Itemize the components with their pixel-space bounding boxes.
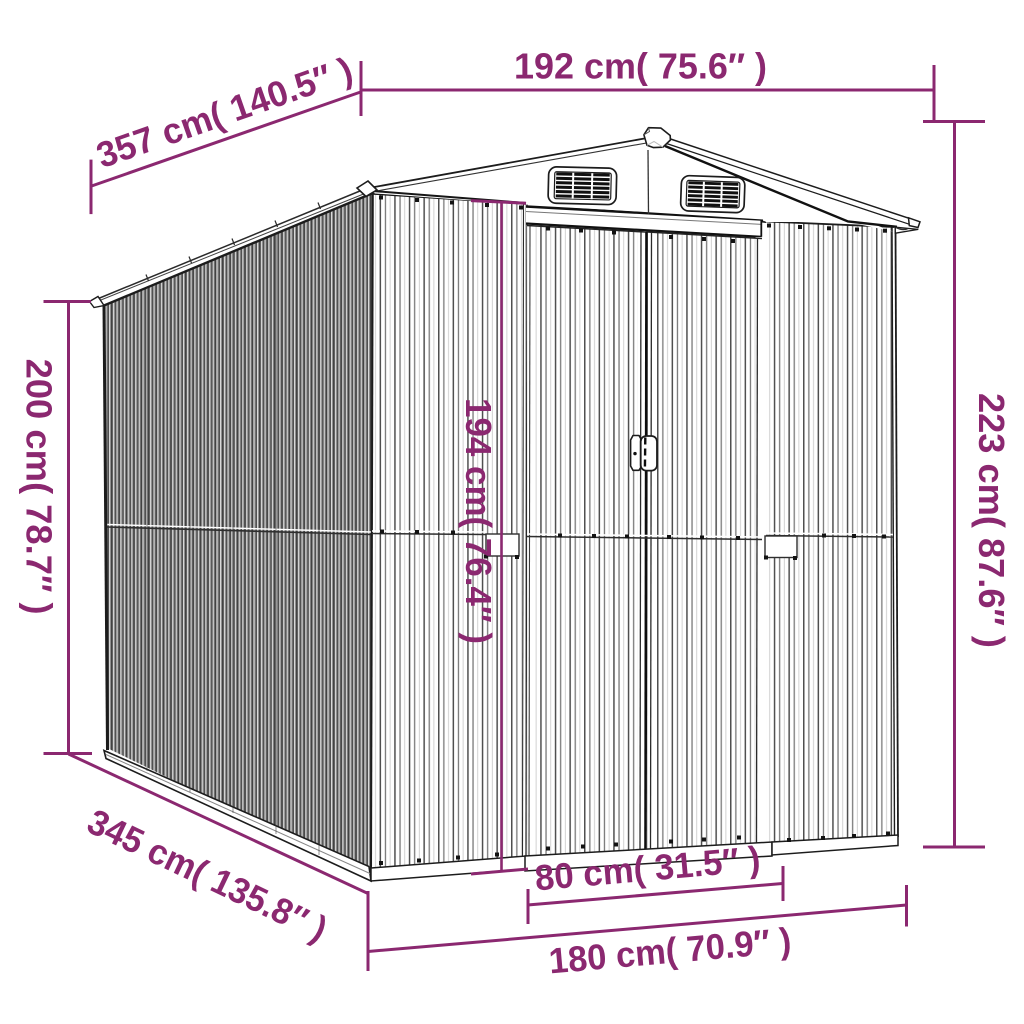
svg-text:194 cm( 76.4″ ): 194 cm( 76.4″ ): [458, 398, 499, 644]
svg-text:200 cm( 78.7″ ): 200 cm( 78.7″ ): [19, 359, 60, 615]
svg-text:223 cm( 87.6″ ): 223 cm( 87.6″ ): [971, 393, 1012, 648]
svg-text:192 cm( 75.6″ ): 192 cm( 75.6″ ): [514, 46, 767, 87]
